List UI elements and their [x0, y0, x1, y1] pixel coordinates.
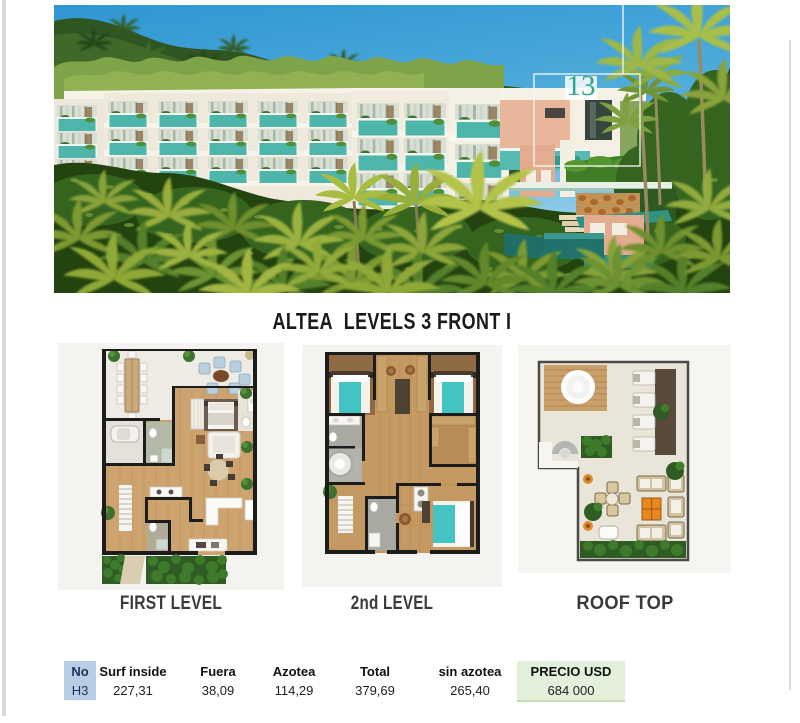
- svg-text:13: 13: [567, 70, 596, 102]
